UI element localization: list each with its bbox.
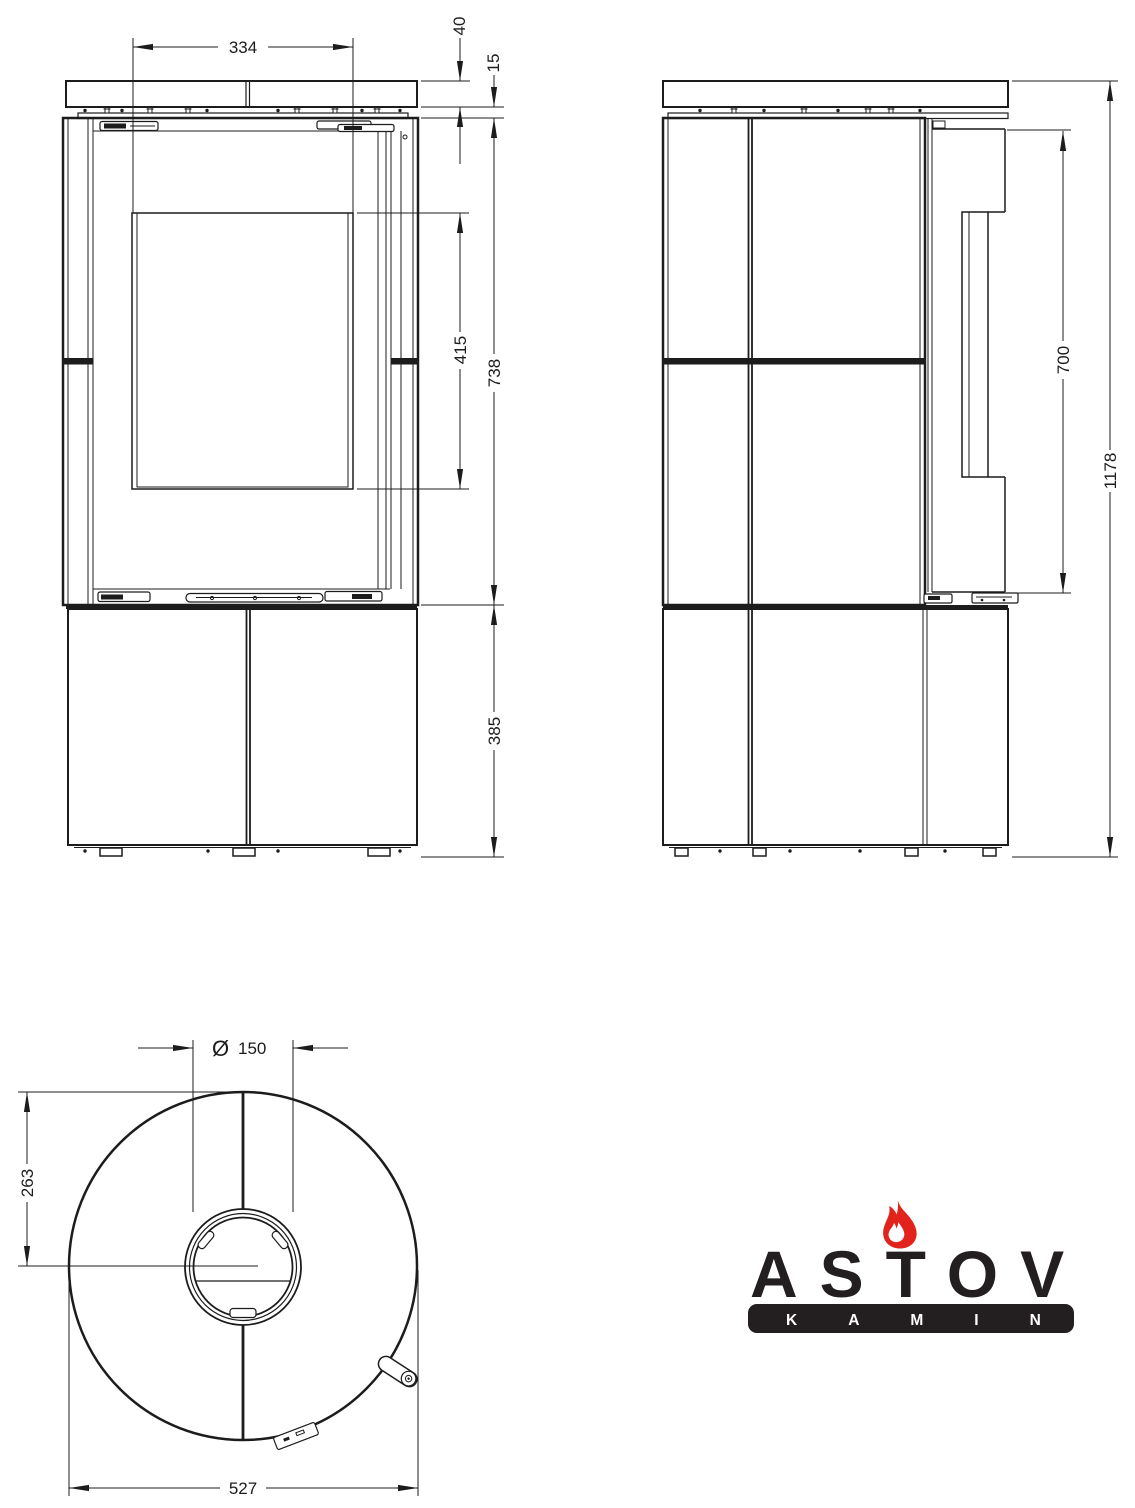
brand-wordmark: ASTOV [750, 1237, 1086, 1311]
side-view [663, 81, 1018, 856]
front-view [63, 81, 418, 856]
side-panel-seam-horizontal [663, 358, 925, 365]
side-foot [675, 848, 688, 856]
front-foot [233, 848, 255, 856]
dim-glass-height: 415 [451, 336, 470, 364]
flue-collar [185, 1209, 301, 1325]
front-base [66, 605, 417, 856]
side-foot [983, 848, 996, 856]
side-glass-strip [962, 212, 988, 477]
brand-subtitle: KAMIN [786, 1312, 1092, 1329]
technical-drawing-page: 334 40 15 415 738 385 [0, 0, 1135, 1508]
dim-flue-diameter: 150 [238, 1039, 266, 1058]
front-view-dimensions: 334 40 15 415 738 385 [133, 17, 504, 857]
side-base [663, 605, 1008, 856]
dim-top-plate-width: 334 [229, 38, 257, 57]
top-view [69, 1092, 420, 1450]
dim-flue-center-offset: 263 [18, 1169, 37, 1197]
diameter-symbol: Ø [212, 1036, 229, 1061]
dim-body-diameter: 527 [229, 1479, 257, 1498]
front-top-plate [66, 81, 417, 107]
top-view-dimensions: Ø 150 263 527 [18, 1036, 418, 1498]
front-top-hinges [100, 121, 407, 139]
brand-logo: ASTOV KAMIN [748, 1201, 1092, 1334]
dim-firebox-height: 738 [485, 359, 504, 387]
door-latch [273, 1422, 319, 1450]
stove-technical-drawing: 334 40 15 415 738 385 [0, 0, 1135, 1508]
dim-door-height: 700 [1054, 346, 1073, 374]
front-glass-window [132, 213, 353, 489]
front-foot [100, 848, 122, 856]
side-bottom-hinges [924, 593, 1018, 603]
dim-top-plate-thickness: 40 [450, 17, 469, 36]
dim-total-height: 1178 [1101, 453, 1120, 490]
flue-tab [230, 1309, 256, 1318]
front-bottom-latches [98, 592, 382, 603]
dim-plate-gap: 15 [484, 54, 503, 73]
front-left-panel-seam [63, 358, 93, 365]
side-top-plate [663, 81, 1008, 107]
side-bolts [698, 108, 921, 114]
side-door-profile [928, 118, 1005, 592]
front-bolts [83, 108, 401, 114]
front-foot [368, 848, 390, 856]
front-right-panel-seam [391, 358, 418, 365]
front-body [63, 118, 418, 605]
side-foot [753, 848, 766, 856]
dim-base-height: 385 [485, 717, 504, 745]
side-foot [905, 848, 918, 856]
side-view-dimensions: 700 1178 [990, 81, 1120, 857]
